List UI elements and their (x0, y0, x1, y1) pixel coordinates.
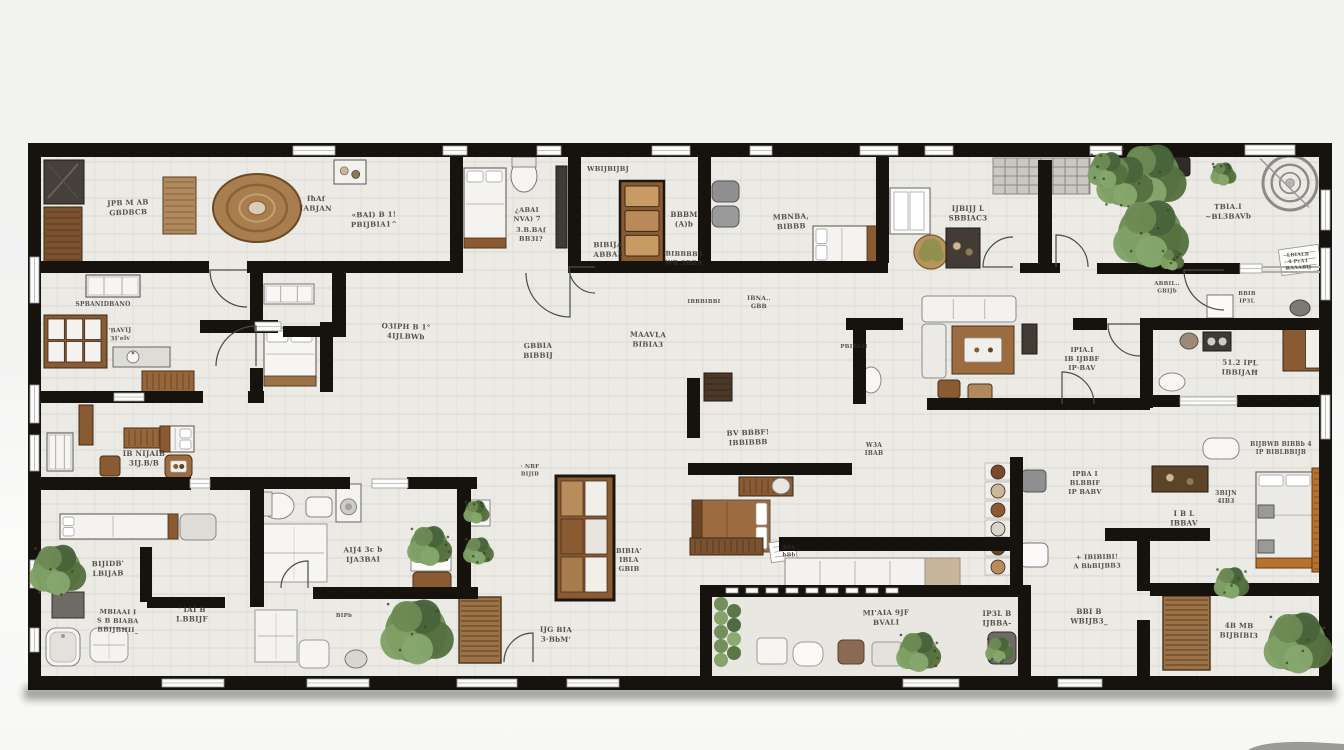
plan-shape (1207, 295, 1233, 318)
plan-shape: «BAI) B 1! (352, 210, 397, 220)
plan-shape (345, 650, 367, 668)
plan-shape (48, 342, 64, 363)
plan-shape (66, 342, 82, 363)
plan-shape (816, 229, 827, 244)
plan-shape (934, 650, 937, 653)
plan-shape (486, 171, 502, 182)
plan-shape (625, 235, 659, 256)
room-label: 3.B.BAſBB3I? (516, 226, 547, 243)
floor-plan-page: JPB M ABGBDBCBIħAſIABJAN«BAI) B 1!PBIJBI… (0, 0, 1344, 750)
plan-shape (989, 638, 1001, 650)
plan-shape (965, 248, 973, 256)
plan-shape: · NBF (521, 464, 540, 470)
wall (876, 157, 889, 263)
plan-shape (66, 319, 82, 340)
plan-shape (1170, 262, 1173, 265)
plan-shape: IP BABV (1068, 488, 1102, 496)
furniture-box (1207, 295, 1233, 318)
plan-shape (248, 201, 266, 215)
wall (688, 463, 852, 475)
wall (1137, 541, 1150, 591)
plan-shape: IP·BAV (1068, 364, 1096, 372)
plan-shape: PBIJBIA1^ (351, 219, 398, 229)
furniture-box (1203, 438, 1239, 459)
plan-shape (1270, 616, 1273, 619)
room-label: 51.2 IPLIBBIJAĦ (1222, 358, 1259, 377)
window (826, 588, 838, 593)
plan-shape: 3IJ.B/B (129, 459, 159, 468)
room-label: · NBFBIJIB (521, 464, 540, 477)
furniture-cush5 (785, 558, 960, 588)
plan-shape (991, 484, 1005, 498)
plan-shape: 'BAVIJ (108, 327, 131, 335)
wall (779, 537, 1015, 551)
plan-shape (180, 429, 191, 438)
wall (247, 261, 463, 273)
room-label: 4B MBBIJBIBI3 (1219, 621, 1258, 640)
plan-shape (85, 342, 101, 363)
plan-shape (910, 192, 924, 230)
plan-shape (727, 632, 741, 646)
plan-shape: 4IB3 (1217, 498, 1234, 505)
plan-shape (1286, 475, 1310, 486)
plan-shape (1167, 209, 1170, 212)
room-label: BIBIJAABBA3 (592, 240, 623, 259)
furniture-wood-deck (459, 597, 501, 663)
plan-shape (1258, 505, 1274, 518)
plan-shape (38, 591, 41, 594)
plan-shape (399, 649, 402, 652)
plan-shape: 3BIJN (1215, 490, 1237, 497)
plan-shape (467, 171, 483, 182)
plan-shape: ¿ABAI (515, 206, 539, 214)
plan-shape (264, 284, 314, 304)
window (866, 588, 878, 593)
plan-shape (481, 505, 484, 508)
plan-shape (387, 603, 390, 606)
plan-shape: BBI B (1076, 607, 1101, 616)
room-label: MBIAAI IS B BIABABBIJBĦII_ (97, 608, 140, 635)
plan-shape (264, 376, 316, 386)
furniture-box (52, 592, 84, 618)
room-label: 3BIJN4IB3 (1215, 490, 1237, 505)
plan-shape (974, 348, 979, 353)
room-label: ¿ABAINVA) 7 (513, 206, 541, 223)
plan-shape: IJG BIA (540, 625, 572, 635)
furniture-slatsH (704, 373, 732, 401)
plan-shape (1186, 478, 1194, 486)
wall (250, 477, 350, 489)
plan-shape (49, 568, 52, 571)
plan-shape (465, 501, 468, 504)
furniture-box (938, 380, 960, 398)
plan-shape (712, 206, 739, 227)
plan-shape (1220, 165, 1223, 168)
plan-shape: IJBIJJ L (952, 204, 985, 213)
room-label: BBIBIP3L (1238, 291, 1256, 304)
plan-shape (411, 528, 414, 531)
plan-shape (1237, 577, 1240, 580)
plan-shape (894, 192, 908, 230)
room-label: IJBIJJ LSBBIAC3 (949, 204, 988, 223)
plan-shape (124, 428, 164, 448)
plan-shape (1102, 177, 1105, 180)
wall (140, 547, 152, 602)
plan-shape (48, 319, 64, 340)
wall (283, 326, 346, 337)
room-label: PBIBIAI (840, 344, 867, 350)
plan-shape (1323, 627, 1326, 630)
furniture-fixture (345, 650, 367, 668)
plan-shape (1180, 333, 1198, 349)
plan-shape (1230, 584, 1233, 587)
wall (568, 157, 581, 263)
plan-shape: BIBBIJ (523, 350, 553, 360)
furniture-box (712, 181, 739, 202)
wall (700, 585, 712, 676)
wall (1105, 528, 1210, 541)
furniture-cush2 (261, 524, 327, 582)
plan-shape: 4IJLBWb (387, 331, 425, 341)
plan-shape (1228, 167, 1231, 170)
plan-shape (1214, 163, 1225, 174)
plan-shape: IBNA.. (747, 295, 771, 302)
plan-shape (1259, 475, 1283, 486)
plan-shape (142, 371, 194, 392)
window (766, 588, 778, 593)
plan-shape: GBDBCB (109, 207, 147, 217)
plan-shape (436, 610, 439, 613)
plan-shape: MAAVLA (630, 330, 667, 340)
plan-shape (925, 558, 960, 588)
plan-shape (937, 657, 940, 660)
plan-shape: AIJ4 3c b (342, 545, 382, 555)
plan-shape (1227, 164, 1230, 167)
room-label: WBIJBIJBJ (586, 165, 629, 173)
plan-shape (487, 558, 490, 561)
furniture-bed (60, 514, 178, 539)
furniture-bed (1256, 472, 1314, 568)
plan-shape (512, 157, 536, 167)
furniture-box (757, 638, 787, 664)
plan-shape: BIBIJA (593, 240, 623, 250)
furniture-cush3 (922, 296, 1016, 322)
plan-shape (988, 348, 993, 353)
plan-shape (1000, 661, 1003, 664)
wall (41, 477, 191, 490)
plan-shape (468, 538, 481, 551)
plan-shape (625, 186, 659, 207)
plan-shape (900, 634, 903, 637)
plan-shape (1093, 176, 1096, 179)
plan-shape (714, 625, 728, 639)
furniture-fixture (772, 478, 790, 494)
plan-shape (1164, 250, 1174, 260)
plan-shape: BIBBBB3 (665, 250, 703, 259)
furniture-fixture (1180, 333, 1198, 349)
room-label: 'BAVIJ3I'elv (108, 327, 131, 343)
plan-shape (100, 456, 120, 476)
plan-shape: IJBBA- (983, 619, 1012, 628)
plan-shape (472, 555, 475, 558)
plan-shape: IP3L (1239, 298, 1254, 304)
plan-shape (1203, 438, 1239, 459)
wall (1018, 585, 1031, 676)
plan-shape: BIJIB (521, 471, 539, 477)
plan-shape (714, 611, 728, 625)
plan-shape: GBB (751, 303, 767, 310)
furniture-plant-pot (914, 235, 948, 269)
plan-shape: MBNBA, (773, 211, 810, 221)
plan-shape (922, 296, 1016, 322)
plan-shape: 3·BbM' (541, 634, 571, 644)
plan-shape (85, 319, 101, 340)
plan-shape (61, 634, 65, 638)
plan-shape (1223, 591, 1226, 594)
furniture-wardrobe (556, 476, 614, 600)
plan-shape (585, 519, 607, 554)
window (806, 588, 818, 593)
plan-shape (1256, 472, 1314, 568)
plan-shape (991, 503, 1005, 517)
furniture-items (946, 228, 980, 268)
plan-shape (86, 275, 140, 297)
plan-shape (1256, 558, 1314, 568)
window (886, 588, 898, 593)
cropped-corner-object (1248, 742, 1344, 750)
plan-shape (727, 604, 741, 618)
plan-shape: IBAB (865, 450, 884, 457)
plan-shape: W3A (865, 442, 882, 449)
plan-shape: 3.B.BAſ (516, 226, 547, 235)
plan-shape: BB3I? (519, 235, 543, 243)
plan-shape: IP3L B (983, 609, 1012, 618)
plan-shape: SPBANIDBANO (75, 301, 130, 308)
plan-shape (424, 626, 427, 629)
furniture-slatsV (690, 538, 763, 555)
furniture-cab3 (264, 284, 314, 304)
room-label: LBIALB4 PcA1BAAABIJ (1285, 251, 1312, 271)
plan-shape (714, 653, 728, 667)
plan-shape (1166, 474, 1174, 482)
plan-shape: WBIJB3_ (1069, 617, 1107, 626)
plan-shape (930, 248, 944, 262)
wall (41, 261, 209, 273)
plan-shape (1287, 180, 1293, 186)
plan-shape (447, 536, 450, 539)
room-label: IBBBIBBI (688, 299, 721, 305)
plan-shape: ABBIL.. (1153, 281, 1180, 287)
misc-layer (1248, 742, 1344, 750)
plan-shape (47, 433, 73, 471)
plan-shape: + IBIBIBI! (1076, 553, 1118, 562)
plan-shape (1130, 250, 1133, 253)
wall (687, 378, 700, 438)
plan-shape: IP BIBLBBIJB (1256, 449, 1306, 456)
room-label: BIAħBb (782, 545, 795, 558)
plan-shape (1168, 261, 1178, 271)
wall (250, 273, 263, 328)
plan-shape: IBLA (619, 556, 639, 564)
plan-shape (180, 514, 216, 540)
plan-shape (757, 638, 787, 664)
furniture-slatsV (142, 371, 194, 392)
plan-shape (561, 557, 583, 592)
room-label: ' IAI BI.BBIJF (176, 605, 208, 624)
room-label: IP3L BIJBBA- (983, 609, 1012, 628)
plan-shape (299, 640, 329, 668)
plan-shape (816, 246, 827, 261)
plan-shape (1022, 470, 1046, 492)
furniture-shelf (620, 181, 664, 265)
furniture-burners (1203, 332, 1231, 351)
plan-shape (991, 465, 1005, 479)
plan-shape (1218, 175, 1229, 186)
plan-shape: IPIA.I (1070, 346, 1093, 354)
plan-shape (179, 464, 184, 469)
furniture-bed (813, 226, 877, 263)
room-label: + IBIBIBI!A BbBIJBB3 (1072, 553, 1121, 571)
wall (698, 157, 711, 263)
furniture-sink (113, 347, 170, 367)
room-label: ABBIL..GBIJb (1153, 281, 1180, 294)
wall (1073, 318, 1107, 330)
window (846, 588, 858, 593)
plan-shape (46, 571, 70, 595)
plan-shape (1244, 570, 1247, 573)
furniture-fixture (1159, 373, 1185, 391)
plan-shape (953, 242, 961, 250)
furniture-items (334, 160, 366, 184)
plan-shape (345, 503, 352, 510)
plan-shape (561, 519, 583, 554)
plan-shape (1173, 259, 1176, 262)
plan-shape: ABBA3 (592, 249, 623, 259)
plan-shape (1157, 227, 1160, 230)
furniture-box (712, 206, 739, 227)
plan-shape: BBBM (670, 210, 697, 219)
wall (698, 261, 888, 273)
plan-shape (132, 352, 135, 355)
plan-shape (903, 633, 922, 652)
plan-shape (727, 646, 741, 660)
plan-shape (585, 481, 607, 516)
plan-shape: IB NIJAIB (123, 449, 166, 458)
plan-shape: I B L (1174, 509, 1195, 518)
plan-shape (60, 514, 178, 539)
plan-shape (1274, 614, 1303, 643)
plan-shape (473, 503, 476, 506)
plan-shape (52, 592, 84, 618)
plan-shape (964, 338, 1001, 362)
window (786, 588, 798, 593)
wall (332, 267, 346, 329)
plan-shape (838, 640, 864, 664)
furniture-box (556, 166, 567, 248)
furniture-box (968, 384, 992, 400)
wall (457, 480, 471, 597)
window (726, 588, 738, 593)
room-label: I B LIBBAV (1170, 509, 1198, 528)
plan-shape: IPBA I (1072, 470, 1098, 478)
furniture-wood-deck (1163, 596, 1210, 670)
wall (250, 368, 263, 393)
furniture-round-rug (213, 174, 301, 242)
plan-shape (1162, 250, 1165, 253)
furniture-drum (336, 484, 361, 522)
plan-shape (1122, 148, 1125, 151)
wall (1140, 318, 1332, 330)
plan-shape: BBIJBĦII_ (97, 625, 138, 634)
plan-shape (483, 552, 486, 555)
plan-shape: BIBBB (777, 221, 806, 231)
furniture-box (512, 157, 536, 167)
plan-shape (446, 559, 449, 562)
plan-shape: LBIJAB (93, 568, 124, 578)
furniture-panes6 (44, 315, 107, 368)
furniture-box (793, 642, 823, 666)
plan-shape (63, 517, 74, 526)
furniture-panes2 (890, 188, 930, 234)
plan-shape (1219, 338, 1227, 346)
furniture-items (1152, 466, 1208, 492)
plan-shape (1020, 543, 1048, 567)
plan-shape: WBIJBIJBJ (586, 165, 629, 173)
plan-shape: GBIJb (1157, 288, 1177, 294)
plan-shape (712, 181, 739, 202)
plan-shape (714, 597, 728, 611)
plan-shape (1120, 204, 1123, 207)
plan-shape (1138, 182, 1141, 185)
furniture-slatsH (44, 207, 82, 263)
plan-shape: ~BL3BAVb (1205, 211, 1251, 221)
plan-shape (1219, 568, 1234, 583)
plan-shape (466, 504, 469, 507)
plan-shape (987, 638, 990, 641)
plan-shape (1163, 596, 1210, 670)
furniture-fixture (1290, 300, 1310, 316)
plan-shape: GBIB (619, 565, 640, 573)
plan-shape (60, 593, 63, 596)
plan-shape (1212, 163, 1215, 166)
plan-shape: 3I'elv (110, 335, 130, 343)
plan-shape (63, 528, 74, 537)
plan-shape (168, 514, 178, 539)
wall (1010, 457, 1023, 597)
furniture-box (180, 514, 216, 540)
room-label: BV BBBF!IBBIBBB (726, 427, 769, 447)
plan-shape (465, 538, 468, 541)
furniture-tray (165, 455, 192, 478)
room-label: O3IPH B 1°4IJLBWb (381, 321, 431, 341)
furniture-diag (44, 160, 84, 204)
plan-shape (1207, 338, 1215, 346)
plan-shape (1096, 165, 1099, 168)
room-label: MAAVLABIBIA3 (630, 330, 667, 349)
plan-shape (352, 170, 360, 178)
furniture-slatsV (124, 428, 164, 448)
furniture-cab3 (47, 433, 73, 471)
plan-shape (989, 660, 992, 663)
plan-shape (180, 440, 191, 449)
plan-shape (704, 373, 732, 401)
plan-shape (476, 561, 479, 564)
wall (1140, 318, 1153, 408)
plan-shape (411, 633, 414, 636)
furniture-box (1020, 543, 1048, 567)
room-label: IJG BIA3·BbM' (540, 625, 573, 644)
plan-shape (391, 601, 422, 632)
